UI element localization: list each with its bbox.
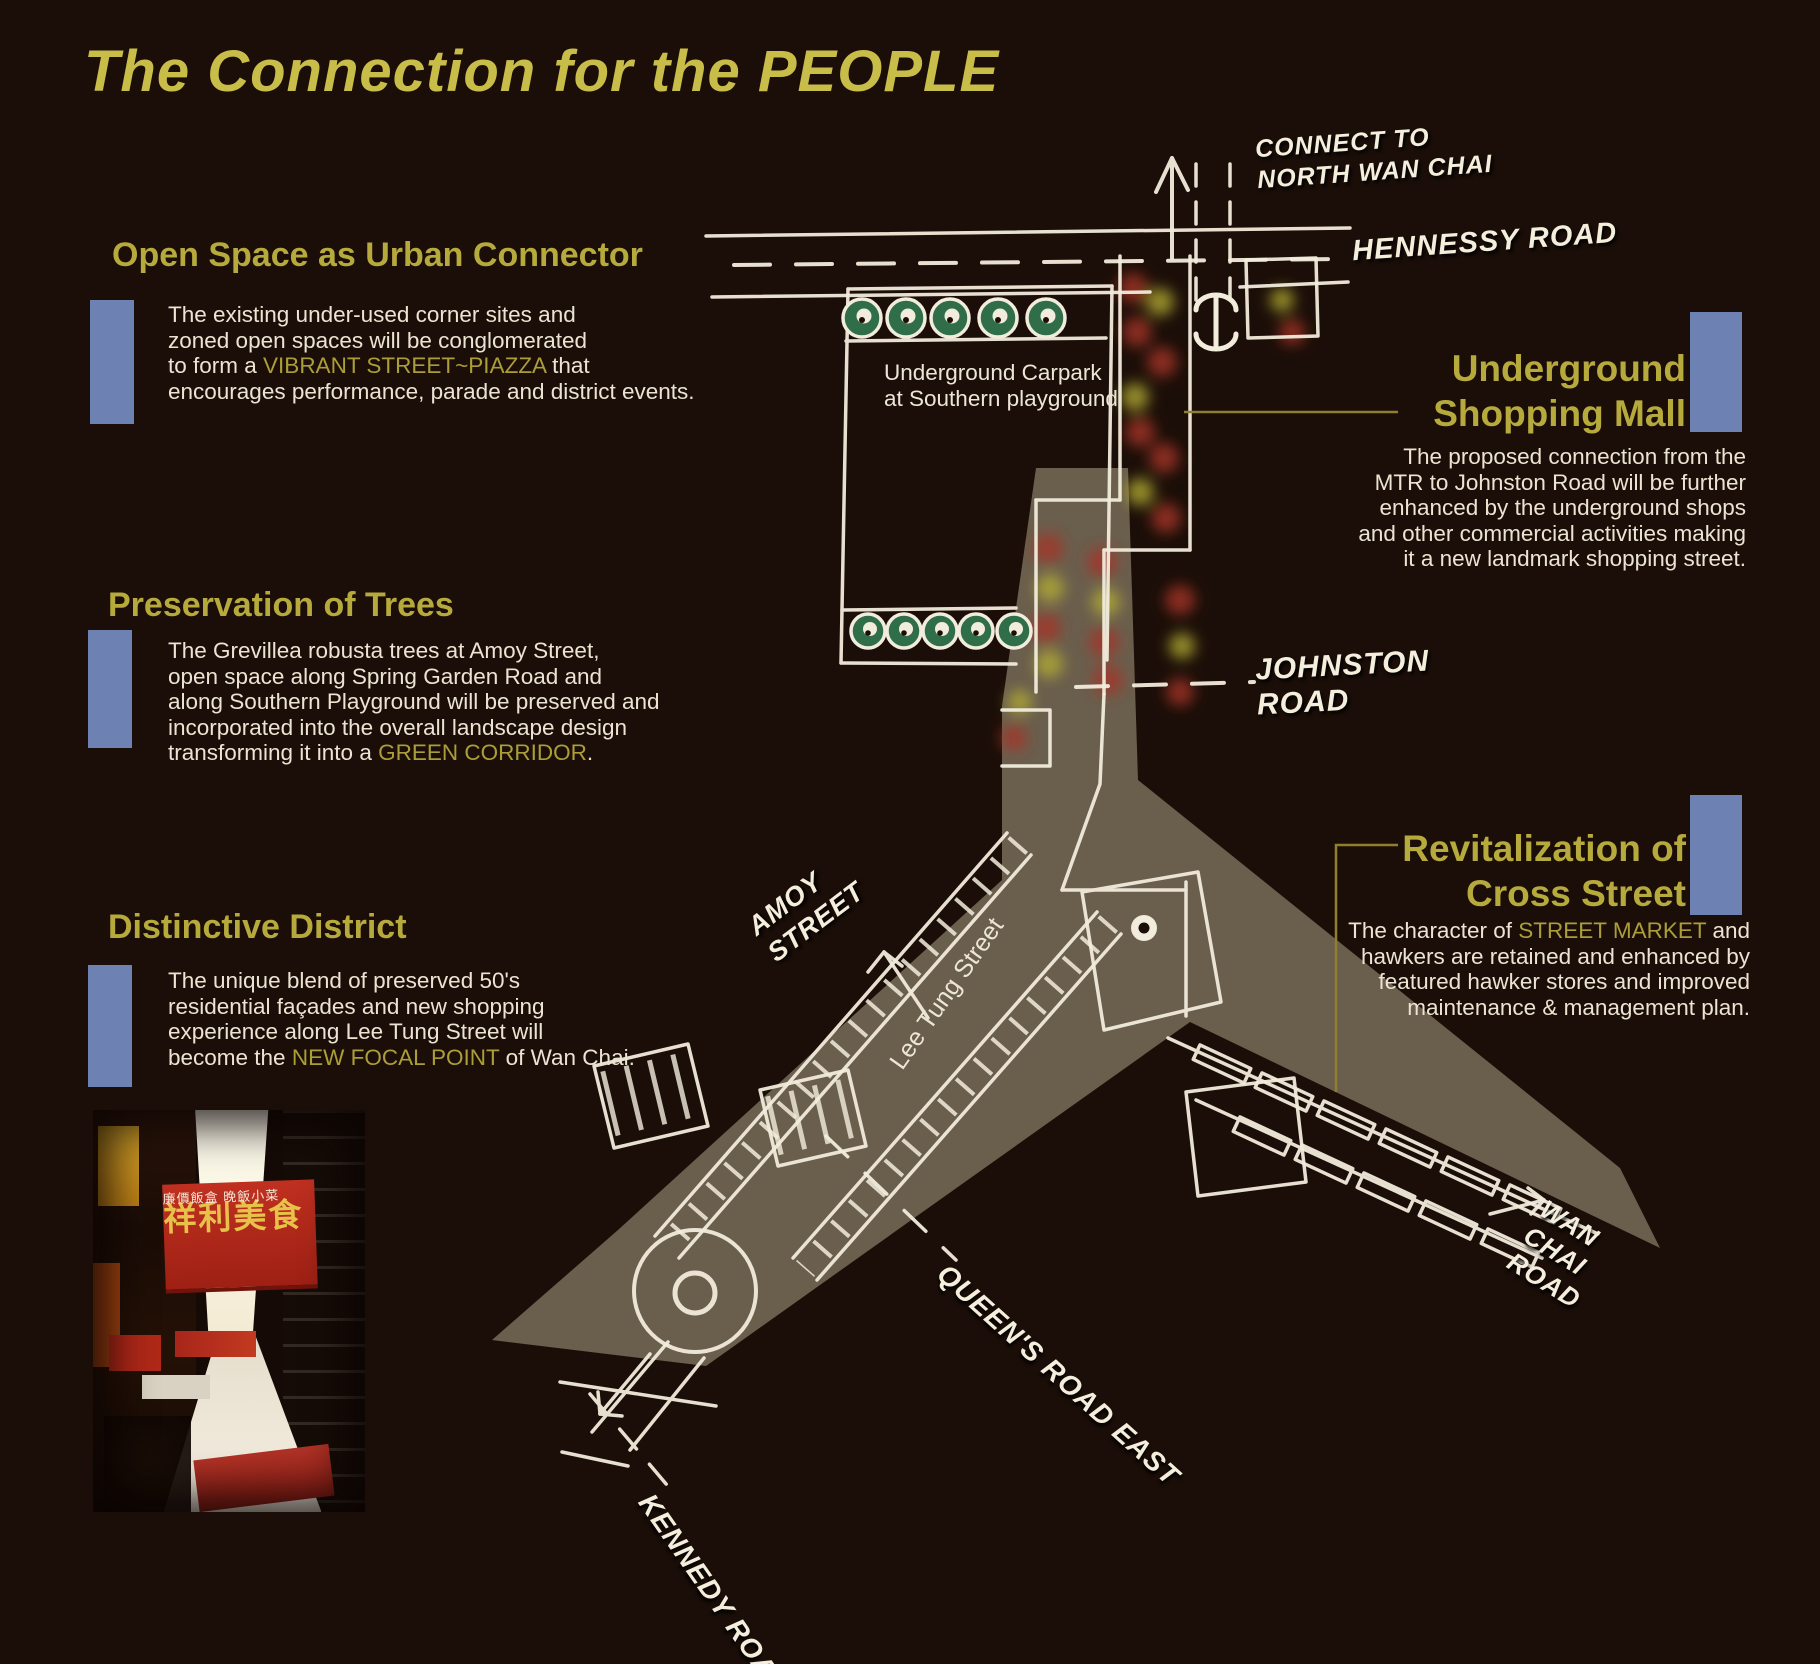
section-heading-underground: Underground Shopping Mall xyxy=(1280,346,1686,436)
section-heading-distinctive: Distinctive District xyxy=(108,908,407,947)
page-title: The Connection for the PEOPLE xyxy=(84,38,999,105)
mtr-station xyxy=(1196,258,1318,349)
body-text-part: The character of xyxy=(1348,918,1518,943)
kennedy-road-sketch xyxy=(560,1342,716,1498)
preserved-trees-row-top xyxy=(843,299,1065,337)
wan-chai-road-arrow xyxy=(1490,1188,1544,1214)
presentation-board: The Connection for the PEOPLE Open Space… xyxy=(0,0,1820,1664)
mtr-icon xyxy=(1196,295,1236,349)
accent-bar-distinctive xyxy=(88,965,132,1087)
label-johnston-road: JOHNSTON ROAD xyxy=(1254,643,1432,722)
label-underground-carpark: Underground Carpark at Southern playgrou… xyxy=(884,360,1118,412)
accent-bar-underground xyxy=(1690,312,1742,432)
body-text-part: of Wan Chai. xyxy=(499,1045,634,1070)
section-body-distinctive: The unique blend of preserved 50's resid… xyxy=(168,968,708,1070)
section-body-preservation: The Grevillea robusta trees at Amoy Stre… xyxy=(168,638,728,766)
body-text-part: . xyxy=(587,740,593,765)
section-heading-revitalization: Revitalization of Cross Street xyxy=(1280,826,1686,916)
accent-bar-open-space xyxy=(90,300,134,424)
preserved-trees-row-bottom xyxy=(851,614,1031,648)
section-heading-preservation: Preservation of Trees xyxy=(108,586,454,625)
section-body-underground: The proposed connection from the MTR to … xyxy=(1280,444,1746,572)
highlight-street-market: STREET MARKET xyxy=(1518,918,1706,943)
section-body-revitalization: The character of STREET MARKET and hawke… xyxy=(1286,918,1750,1020)
highlight-vibrant-street-piazza: VIBRANT STREET~PIAZZA xyxy=(263,353,546,378)
highlight-green-corridor: GREEN CORRIDOR xyxy=(378,740,587,765)
accent-bar-preservation xyxy=(88,630,132,748)
street-photo: 祥利美食 廉價飯盒 晚飯小菜 xyxy=(93,1110,365,1512)
section-heading-open-space: Open Space as Urban Connector xyxy=(112,236,643,275)
map-dot xyxy=(1131,915,1157,941)
section-body-open-space: The existing under-used corner sites and… xyxy=(168,302,708,404)
highlight-new-focal-point: NEW FOCAL POINT xyxy=(292,1045,500,1070)
accent-bar-revitalization xyxy=(1690,795,1742,915)
photo-vignette xyxy=(93,1110,365,1512)
